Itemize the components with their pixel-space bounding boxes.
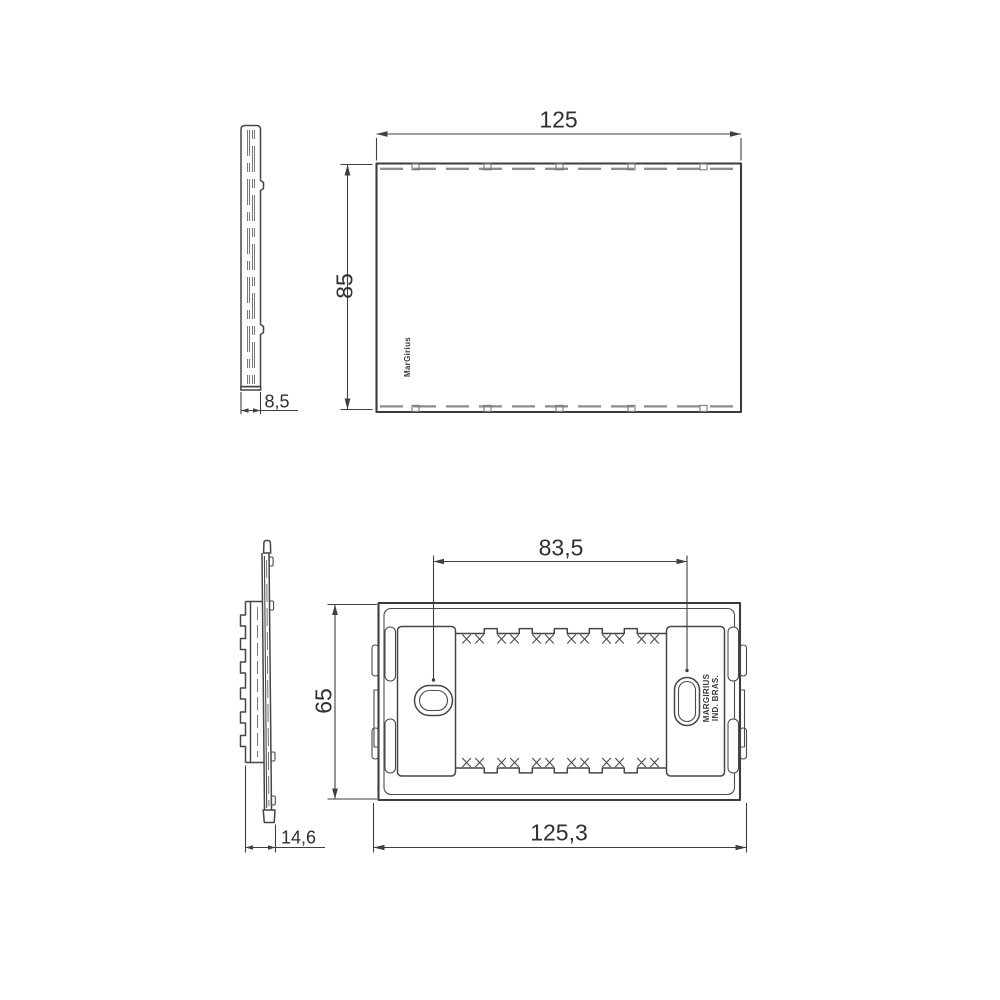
arrowhead (332, 605, 338, 616)
dimension-height-85: 85 (332, 165, 373, 410)
arrowhead (241, 408, 249, 412)
arrowhead (736, 845, 747, 851)
figure2-front-view: MARGIRIUS IND. BRAS. (372, 603, 747, 800)
break-tab-marks (567, 635, 589, 644)
plate-left-edge (262, 553, 265, 810)
brand-text: MarGirius (403, 337, 412, 377)
dimension-height-65: 65 (311, 605, 378, 800)
arrowhead (374, 845, 385, 851)
side-hidden-line (267, 560, 269, 806)
arrowhead (677, 559, 688, 565)
figure1-cover-plate: MarGirius 125 85 8,5 (241, 107, 741, 415)
leader-dot (432, 678, 435, 681)
plate-top-foot (264, 541, 271, 554)
leader-dot (685, 669, 688, 672)
brand-text-line1: MARGIRIUS (702, 673, 711, 722)
dimension-lines (377, 134, 742, 161)
figure1-side-view (241, 126, 264, 391)
arrowhead (434, 559, 445, 565)
arrowhead (253, 408, 261, 412)
figure1-front-view: MarGirius (377, 164, 742, 413)
left-edge-latch (385, 627, 396, 681)
break-tab-marks (532, 758, 554, 767)
right-edge-latch (728, 627, 739, 681)
break-tab-marks (462, 758, 484, 767)
break-tab-marks (637, 635, 659, 644)
break-tab-marks (602, 635, 624, 644)
side-view-bottom-cap (241, 387, 261, 390)
break-tab-marks (602, 758, 624, 767)
snap-tab (700, 164, 707, 170)
break-tab-marks (567, 758, 589, 767)
plate-right-edge (269, 553, 272, 810)
brand-text-line2: IND. BRAS. (711, 675, 720, 721)
dimension-depth-14-6: 14,6 (246, 766, 326, 853)
dim-height-label: 85 (332, 273, 358, 299)
plate-bottom-foot (263, 810, 275, 823)
break-tab-marks (497, 635, 519, 644)
snap-tab (700, 405, 707, 411)
dim-width-label: 125,3 (530, 820, 588, 846)
technical-drawing-svg: MarGirius 125 85 8,5 (0, 0, 1000, 1000)
arrowhead (332, 789, 338, 800)
dimension-width-125-3: 125,3 (374, 803, 747, 853)
arrowhead (268, 845, 276, 849)
left-edge-latch (385, 719, 396, 773)
arrowhead (730, 131, 741, 137)
dim-height-label: 65 (311, 688, 337, 714)
dimension-lines (434, 556, 688, 680)
opening-bottom-edge (456, 768, 667, 773)
comb-bracket (241, 602, 265, 763)
opening-top-edge (456, 629, 667, 634)
figure2-mounting-frame: MARGIRIUS IND. BRAS. 83,5 65 125,3 (241, 535, 747, 853)
break-tab-marks (497, 758, 519, 767)
dim-depth-label: 8,5 (265, 392, 290, 412)
break-tab-marks (637, 758, 659, 767)
arrowhead (345, 165, 351, 176)
dimension-depth-8-5: 8,5 (241, 392, 298, 415)
break-tab-marks (532, 635, 554, 644)
dim-hole-spacing-label: 83,5 (539, 535, 584, 561)
dim-depth-label: 14,6 (281, 828, 316, 848)
dimension-width-125: 125 (377, 107, 742, 161)
front-view-outline (377, 164, 742, 413)
break-tab-marks (462, 635, 484, 644)
arrowhead (246, 845, 254, 849)
technical-drawing-page: MarGirius 125 85 8,5 (0, 0, 1000, 1000)
arrowhead (345, 399, 351, 410)
arrowhead (377, 131, 388, 137)
right-edge-latch (728, 719, 739, 773)
dim-width-label: 125 (539, 107, 577, 133)
